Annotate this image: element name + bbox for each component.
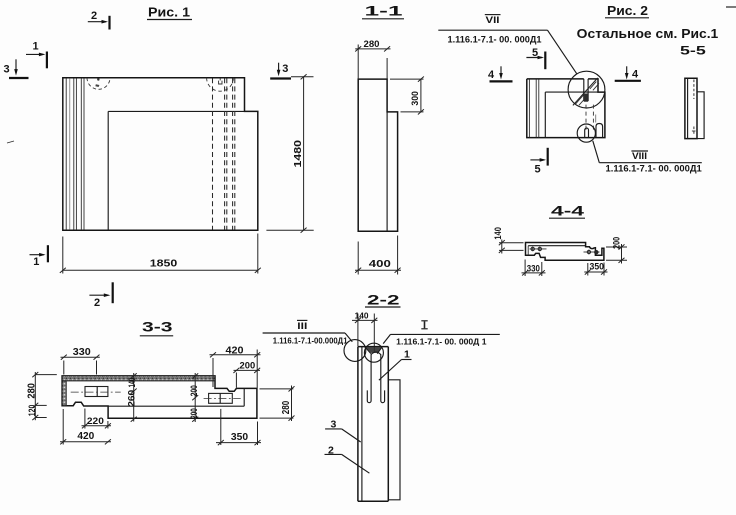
svg-text:3: 3 xyxy=(282,63,288,75)
svg-text:220: 220 xyxy=(87,416,104,427)
svg-text:4: 4 xyxy=(488,69,495,81)
svg-text:200: 200 xyxy=(240,360,256,371)
svg-text:1: 1 xyxy=(33,41,39,53)
svg-text:1850: 1850 xyxy=(150,257,178,269)
svg-text:300: 300 xyxy=(410,91,421,106)
svg-text:350: 350 xyxy=(231,432,249,443)
svg-text:1480: 1480 xyxy=(292,140,304,168)
svg-text:2: 2 xyxy=(94,297,100,309)
svg-text:330: 330 xyxy=(527,263,540,273)
svg-text:3: 3 xyxy=(4,63,10,75)
svg-text:280: 280 xyxy=(281,400,292,414)
svg-text:200: 200 xyxy=(611,237,621,249)
svg-text:VII: VII xyxy=(486,15,500,25)
svg-text:5: 5 xyxy=(535,164,541,176)
svg-text:3-3: 3-3 xyxy=(142,319,173,335)
svg-text:VIII: VIII xyxy=(632,151,647,161)
svg-text:280: 280 xyxy=(364,39,380,50)
svg-text:260: 260 xyxy=(127,390,138,407)
svg-text:III: III xyxy=(297,321,307,331)
svg-text:Остальное см. Рис.1: Остальное см. Рис.1 xyxy=(577,26,719,41)
svg-text:120: 120 xyxy=(27,405,38,417)
svg-text:200: 200 xyxy=(189,385,200,396)
svg-text:420: 420 xyxy=(77,431,94,442)
svg-text:1: 1 xyxy=(33,256,39,268)
svg-text:1.116.1-7.1- 00. 000Д1: 1.116.1-7.1- 00. 000Д1 xyxy=(448,34,542,44)
svg-text:1-1: 1-1 xyxy=(365,3,403,19)
svg-text:400: 400 xyxy=(369,259,392,270)
svg-text:200: 200 xyxy=(189,408,200,419)
svg-text:4-4: 4-4 xyxy=(551,202,584,218)
svg-text:140: 140 xyxy=(493,227,503,240)
svg-text:Рис. 1: Рис. 1 xyxy=(148,5,190,20)
svg-text:420: 420 xyxy=(226,345,244,356)
svg-text:4: 4 xyxy=(632,69,639,81)
svg-text:1.116.1-7.1- 00. 000Д1: 1.116.1-7.1- 00. 000Д1 xyxy=(606,164,702,174)
svg-text:5-5: 5-5 xyxy=(680,44,706,58)
svg-text:330: 330 xyxy=(73,347,91,358)
svg-text:1: 1 xyxy=(404,349,410,361)
svg-text:2-2: 2-2 xyxy=(367,292,400,308)
svg-text:Рис. 2: Рис. 2 xyxy=(607,3,648,18)
svg-text:2: 2 xyxy=(91,10,97,22)
svg-text:1.116.1-7.1-00.000Д1: 1.116.1-7.1-00.000Д1 xyxy=(273,335,348,345)
svg-text:140: 140 xyxy=(127,378,138,388)
svg-text:140: 140 xyxy=(355,311,369,321)
svg-text:1.116.1-7.1- 00. 000Д 1: 1.116.1-7.1- 00. 000Д 1 xyxy=(396,336,487,346)
svg-text:280: 280 xyxy=(27,383,38,399)
svg-text:350: 350 xyxy=(590,262,605,272)
